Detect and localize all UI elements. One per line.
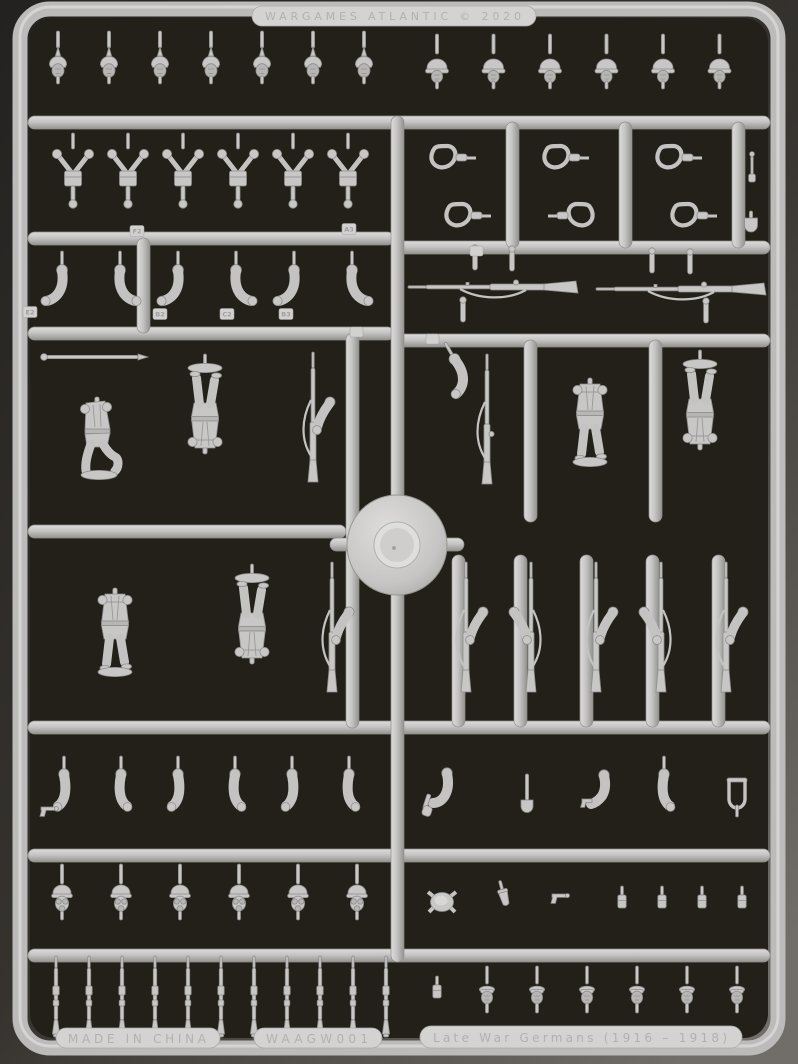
sprue-runner bbox=[28, 232, 394, 245]
brand-text: WARGAMES ATLANTIC © 2020 bbox=[265, 10, 523, 23]
sku-tab: WAAGW001 bbox=[254, 1028, 382, 1048]
clip-peg bbox=[460, 297, 466, 322]
part-tag-blank bbox=[350, 327, 363, 337]
part-tag-label: B3 bbox=[281, 311, 290, 319]
sprue-runner bbox=[137, 238, 150, 333]
clip-peg bbox=[703, 298, 709, 323]
part-tag: B3 bbox=[279, 309, 293, 320]
sprue-runner bbox=[28, 525, 346, 538]
part-tag: B2 bbox=[153, 309, 167, 320]
sprue-photo: F2 A3 E2 B2 C2 B3 WARGAMES ATLANTIC © 20… bbox=[0, 0, 798, 1064]
brand-tab: WARGAMES ATLANTIC © 2020 bbox=[252, 6, 536, 26]
clip-peg bbox=[509, 246, 515, 271]
part-tag: F2 bbox=[130, 226, 144, 237]
sprue-runner bbox=[397, 334, 770, 347]
sprue-runner bbox=[619, 122, 632, 248]
sprue-runner bbox=[524, 340, 537, 522]
sprue-runner bbox=[649, 340, 662, 522]
center-hub bbox=[347, 495, 447, 595]
part-tag-blank bbox=[426, 334, 439, 344]
made-in-text: MADE IN CHINA bbox=[68, 1032, 208, 1046]
sprue-runner bbox=[28, 327, 394, 340]
clip-peg bbox=[687, 249, 693, 274]
loose-helmet bbox=[428, 892, 456, 912]
sprue-runner bbox=[397, 241, 770, 254]
product-tab: Late War Germans (1916 – 1918) bbox=[420, 1026, 742, 1048]
part-tag: E2 bbox=[23, 307, 37, 318]
made-in-tab: MADE IN CHINA bbox=[56, 1028, 220, 1048]
part-tag-label: C2 bbox=[222, 311, 231, 319]
part-tag: C2 bbox=[220, 309, 234, 320]
sprue-runner bbox=[506, 122, 519, 248]
part-tag-label: E2 bbox=[26, 309, 35, 317]
part-tag-label: A3 bbox=[344, 226, 354, 234]
sprue-runner bbox=[732, 122, 745, 248]
part-tag-label: B2 bbox=[155, 311, 164, 319]
part-tag-blank bbox=[470, 246, 483, 256]
clip-peg bbox=[649, 248, 655, 273]
part-tag-label: F2 bbox=[133, 228, 142, 236]
product-text: Late War Germans (1916 – 1918) bbox=[433, 1031, 729, 1045]
part-tag: A3 bbox=[342, 224, 356, 235]
